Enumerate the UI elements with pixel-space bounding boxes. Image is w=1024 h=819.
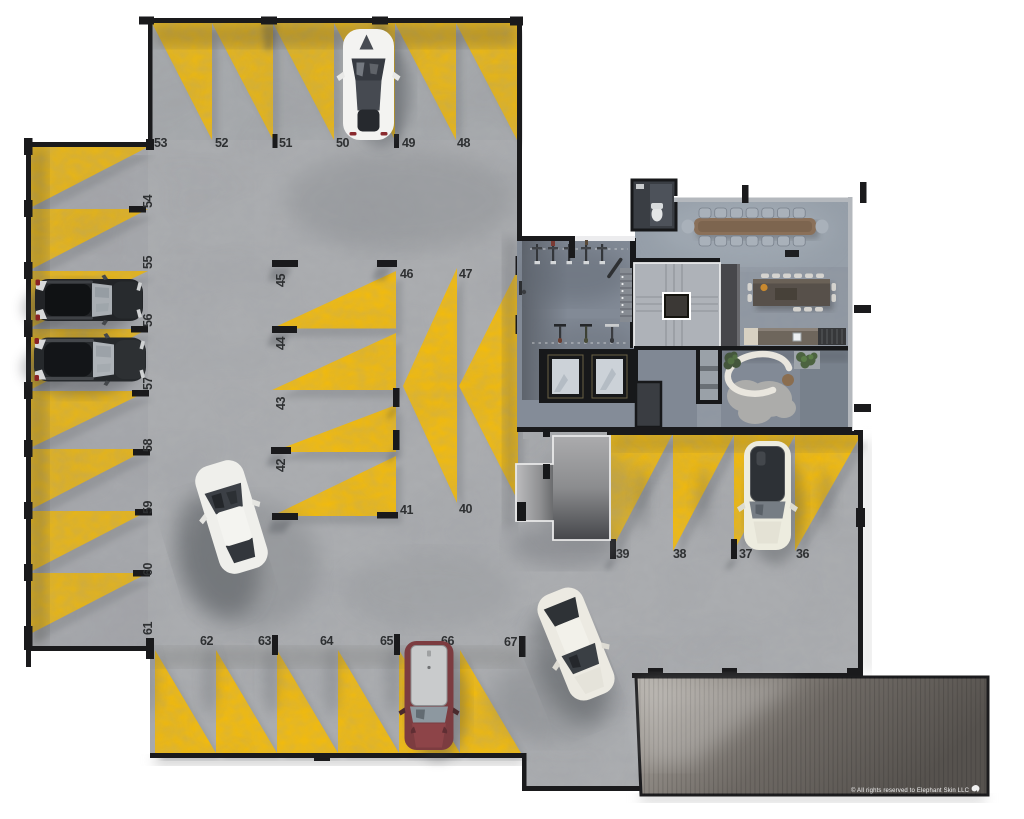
- svg-text:48: 48: [457, 136, 471, 150]
- svg-text:52: 52: [215, 136, 229, 150]
- svg-text:© All rights reserved to Eleph: © All rights reserved to Elephant Skin L…: [851, 787, 970, 794]
- svg-text:36: 36: [796, 547, 810, 561]
- svg-text:63: 63: [258, 634, 272, 648]
- svg-text:58: 58: [141, 438, 155, 452]
- svg-text:49: 49: [402, 136, 416, 150]
- svg-text:67: 67: [504, 635, 518, 649]
- svg-text:43: 43: [274, 396, 288, 410]
- svg-text:41: 41: [400, 503, 414, 517]
- svg-text:47: 47: [459, 267, 473, 281]
- svg-text:42: 42: [274, 458, 288, 472]
- svg-text:45: 45: [274, 273, 288, 287]
- svg-text:51: 51: [279, 136, 293, 150]
- svg-text:57: 57: [141, 376, 155, 390]
- svg-text:65: 65: [380, 634, 394, 648]
- svg-text:60: 60: [141, 562, 155, 576]
- svg-text:38: 38: [673, 547, 687, 561]
- svg-text:37: 37: [739, 547, 753, 561]
- svg-text:61: 61: [141, 621, 155, 635]
- svg-text:40: 40: [459, 502, 473, 516]
- svg-text:55: 55: [141, 255, 155, 269]
- svg-text:56: 56: [141, 313, 155, 327]
- svg-text:53: 53: [154, 136, 168, 150]
- svg-text:44: 44: [274, 336, 288, 350]
- svg-text:50: 50: [336, 136, 350, 150]
- svg-text:59: 59: [141, 500, 155, 514]
- svg-text:54: 54: [141, 194, 155, 208]
- svg-text:46: 46: [400, 267, 414, 281]
- svg-text:62: 62: [200, 634, 214, 648]
- svg-text:64: 64: [320, 634, 334, 648]
